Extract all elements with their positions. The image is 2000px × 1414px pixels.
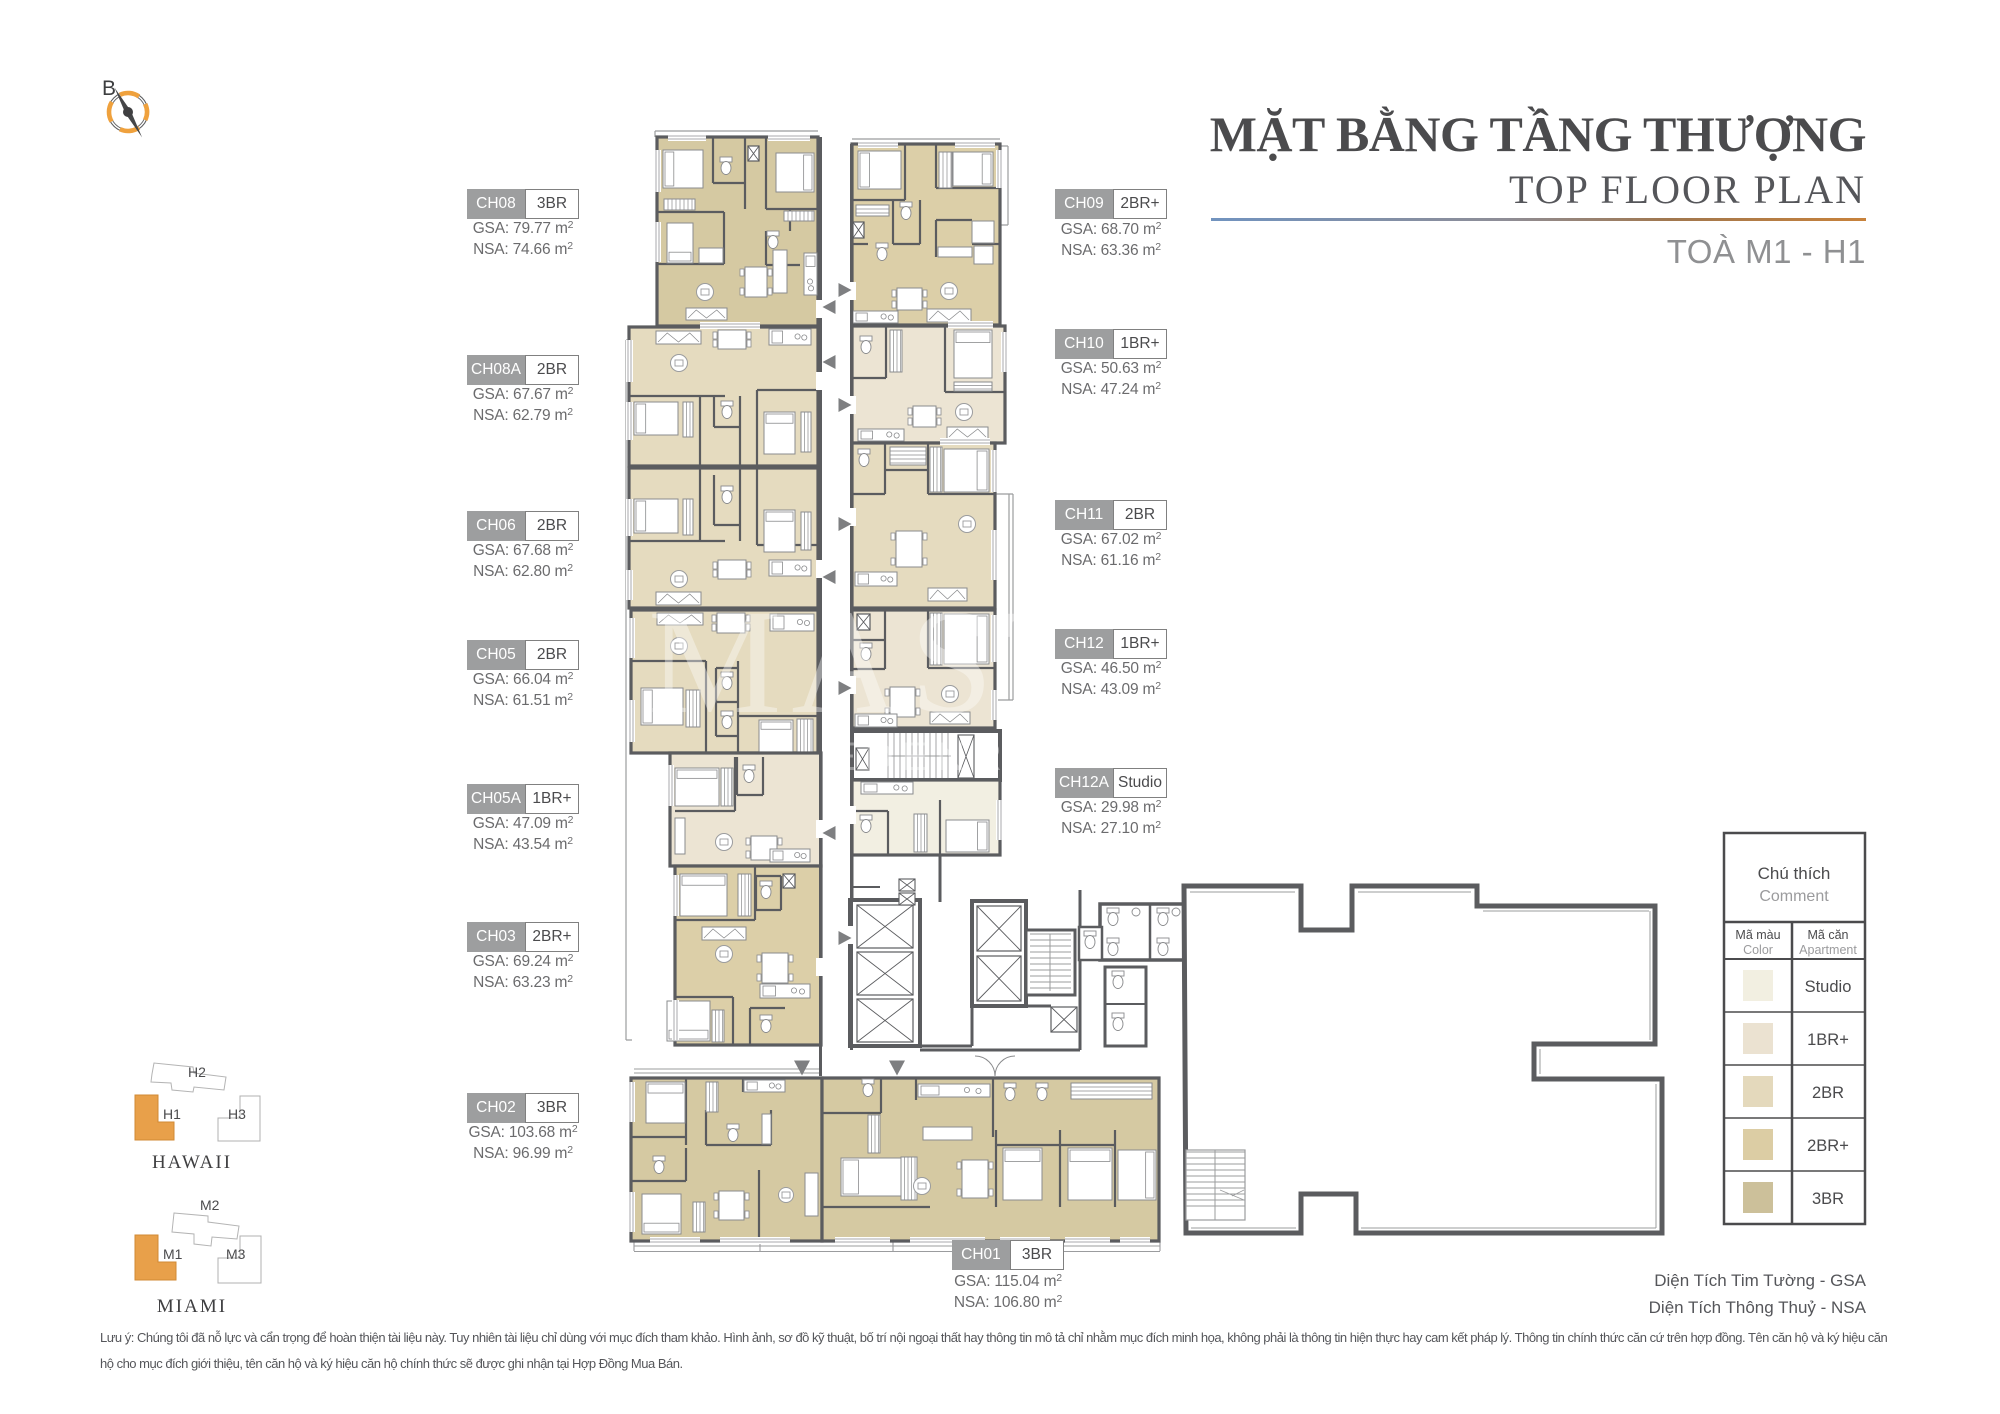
svg-text:M2: M2 (200, 1197, 220, 1213)
svg-text:Color: Color (1743, 943, 1773, 957)
svg-text:3BR: 3BR (1812, 1190, 1844, 1208)
svg-text:Mã căn: Mã căn (1808, 928, 1849, 942)
svg-text:H2: H2 (188, 1064, 206, 1080)
svg-text:Mã màu: Mã màu (1735, 928, 1780, 942)
svg-text:HAWAII: HAWAII (152, 1152, 232, 1173)
svg-text:Comment: Comment (1759, 888, 1829, 905)
svg-text:M3: M3 (226, 1246, 246, 1262)
svg-text:Chú thích: Chú thích (1758, 864, 1831, 883)
svg-text:H3: H3 (228, 1106, 246, 1122)
svg-text:1BR+: 1BR+ (1807, 1031, 1849, 1049)
svg-text:2BR: 2BR (1812, 1084, 1844, 1102)
svg-text:H1: H1 (163, 1106, 181, 1122)
svg-text:Apartment: Apartment (1799, 943, 1857, 957)
svg-text:MIAMI: MIAMI (157, 1296, 227, 1317)
svg-text:2BR+: 2BR+ (1807, 1137, 1849, 1155)
svg-text:Studio: Studio (1805, 978, 1852, 996)
svg-text:M1: M1 (163, 1246, 183, 1262)
